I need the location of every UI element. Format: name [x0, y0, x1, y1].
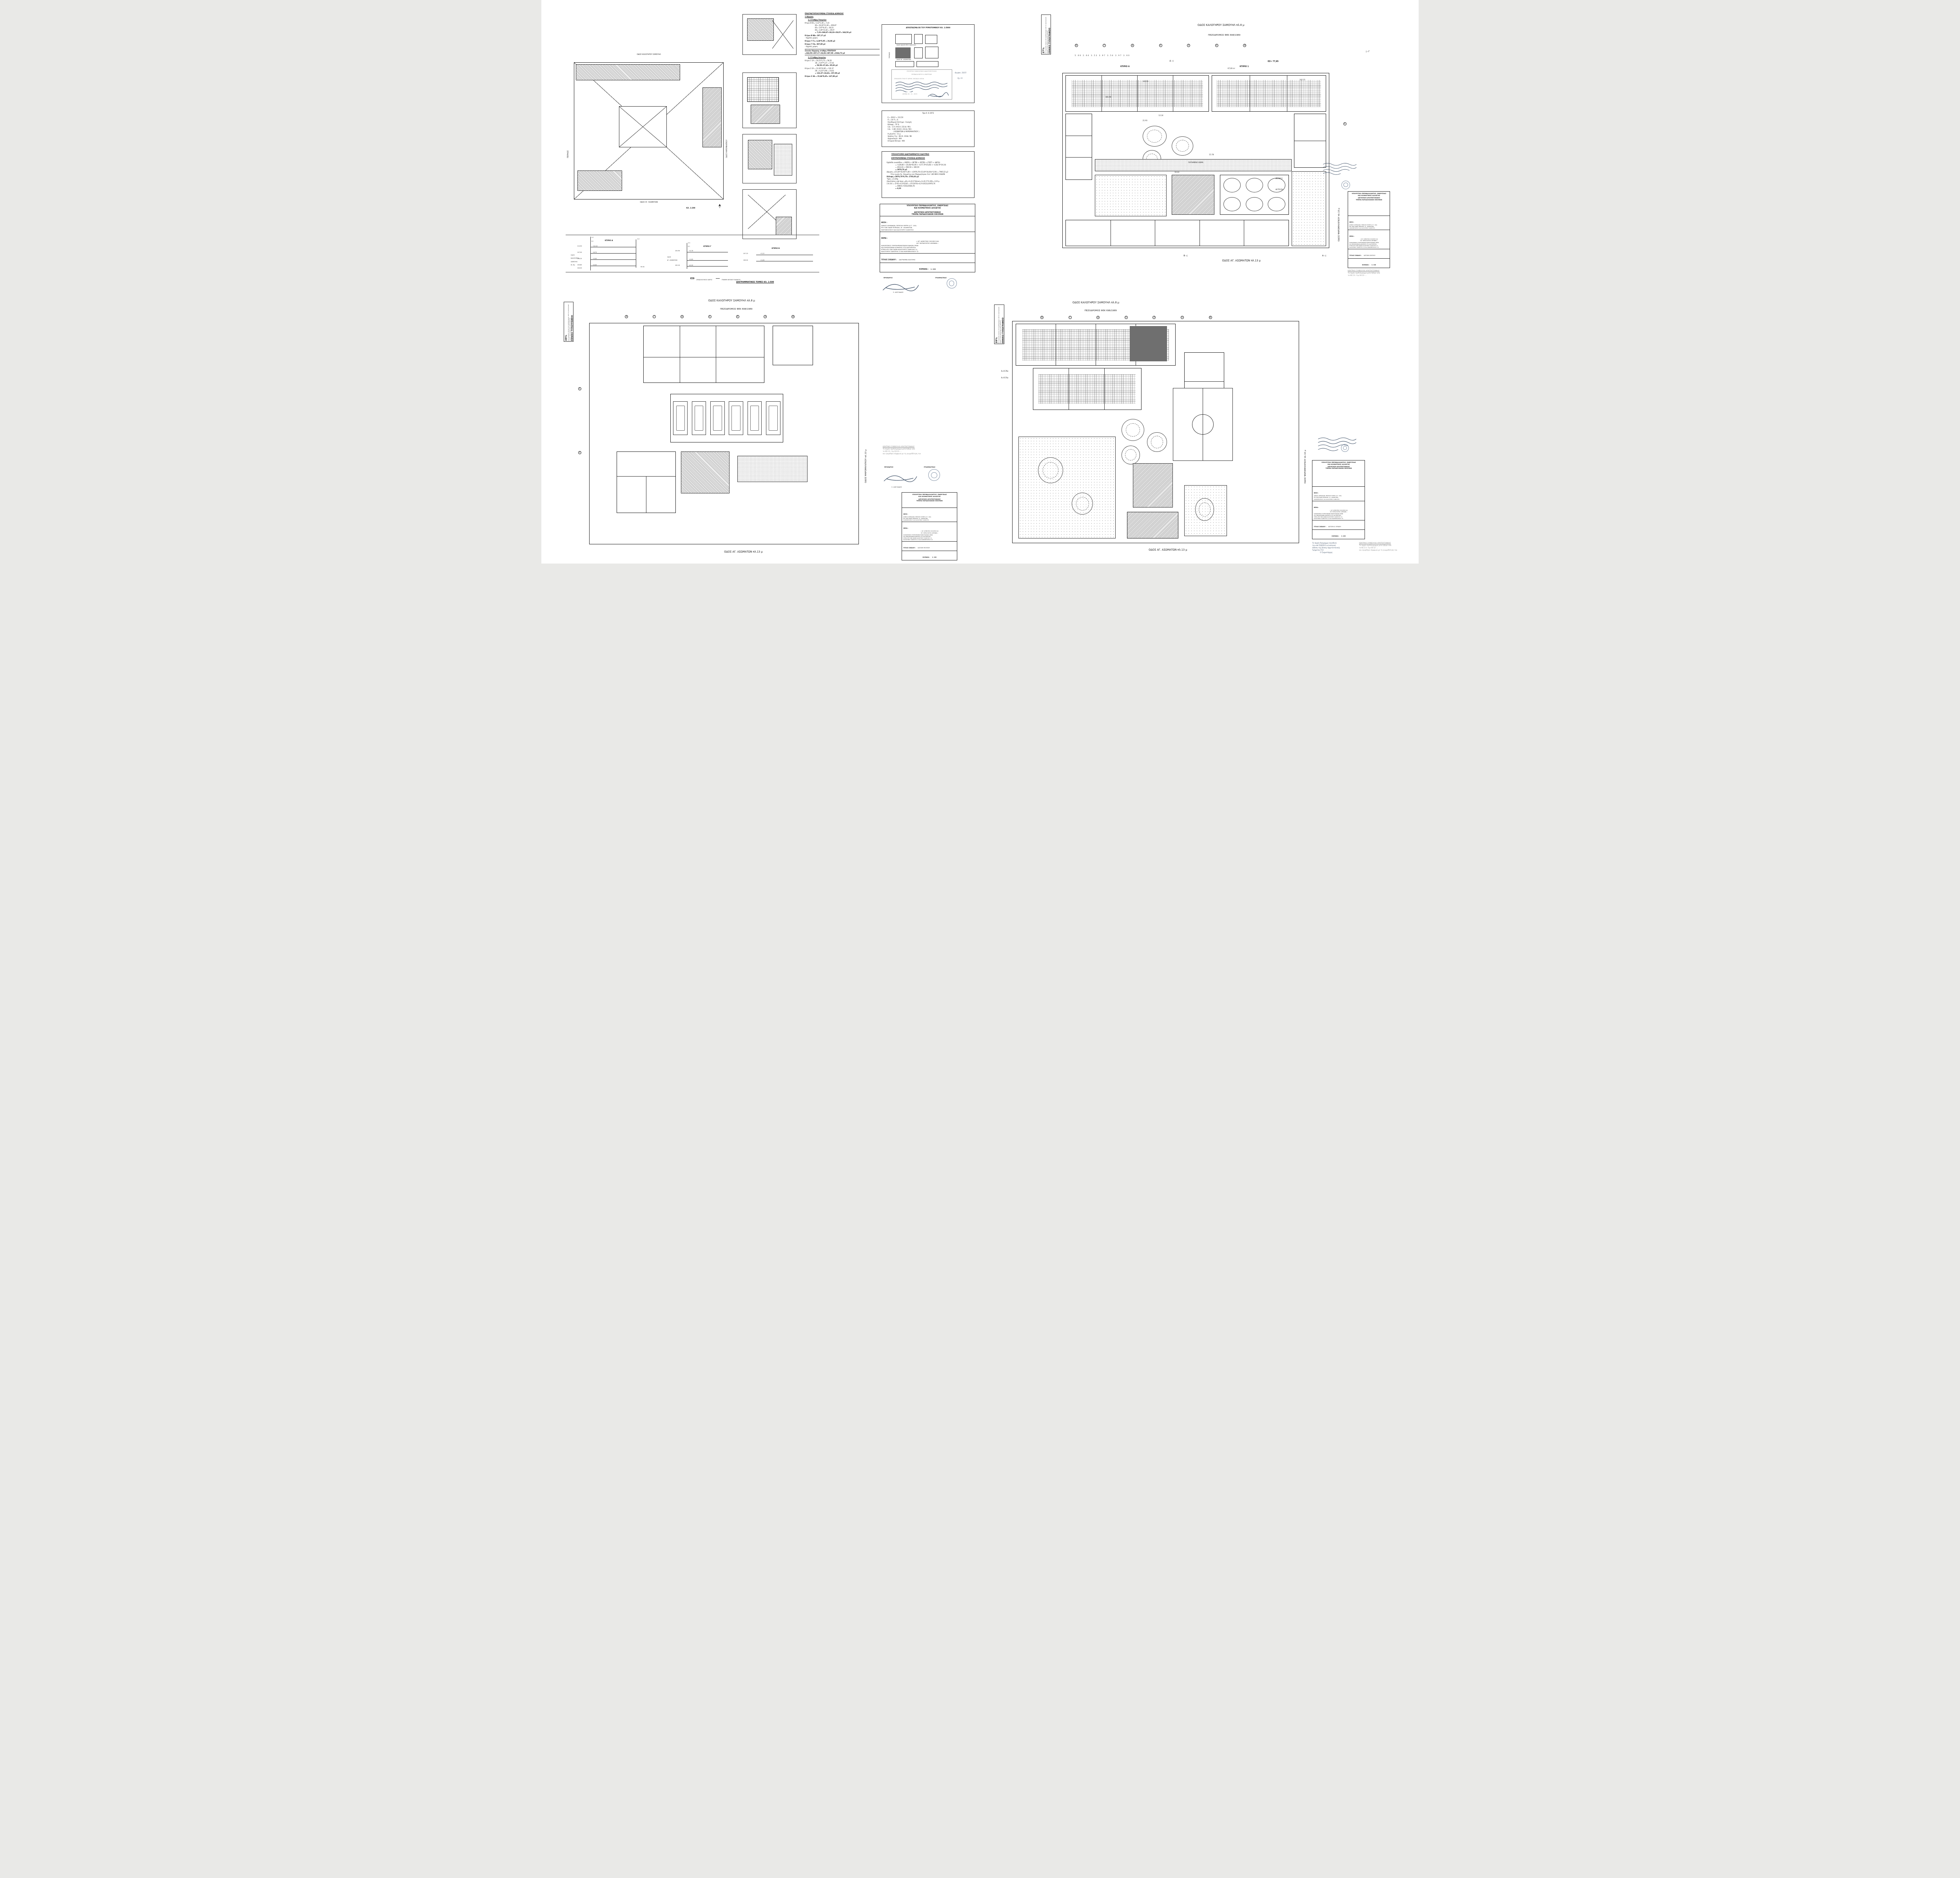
legend-archaeological: ΑΡΧΑΙΟΛΟΓΙΚΟΣ ΧΩΡΟΣ ΓΡΑΜΜΗ ΦΥΣΙΚΟΥ ΕΔΑΦΟ… [690, 274, 740, 282]
garage [670, 394, 783, 442]
classroom-band [1065, 75, 1209, 112]
subject-label: ΘΕΜΑ : [881, 237, 887, 239]
round-seal [1341, 181, 1350, 189]
street-bottom-label: ΟΔΟΣ ΑΓ. ΑΣΩΜΑΤΩΝ πλ.13 μ [724, 550, 762, 554]
grid-bubble: Θ [791, 315, 795, 318]
key-map-site-block [895, 47, 911, 58]
president-name: Σ. ΑΛΕΞΙΑΔΗΣ [893, 292, 903, 294]
calc3-sub: ΕΠΙΤΡΕΠΟΜΕΝΑ ΣΤΟΙΧΕΙΑ ΔΟΜΗΣΗΣ [891, 157, 925, 159]
level-label: 101.90 [1105, 96, 1111, 98]
calc-column: ΠΡΑΓΜΑΤΟΠΟΙΟΥΜΕΝΑ ΣΤΟΙΧΕΙΑ ΔΟΜΗΣΗΣ 1 Δόμ… [805, 13, 880, 78]
street-top-label: ΟΔΟΣ ΚΑΛΟΓΗΡΟΥ ΣΑΜΟΥΗΛ πλ.8 μ [1198, 24, 1244, 27]
grid-bubble: Β [625, 315, 628, 318]
title-block: ΥΠΟΥΡΓΕΙΟ ΠΕΡΙΒΑΛΛΟΝΤΟΣ, ΕΝΕΡΓΕΙΑΣ ΚΑΙ Κ… [1348, 191, 1390, 268]
grid-bubble: Ζ [1187, 44, 1190, 47]
section-ktirio-g: ΟΔΟΣ ΑΓ. ΑΣΩΜΑΤΩΝ Ο.Γ. Ρ.Γ. ΚΤΙΡΙΟ Γ 104… [667, 237, 733, 270]
national-printing-stamp: 39% Για τεχνικούς λόγους στο σχεδιάγραμμ… [994, 305, 1004, 344]
drawing-scale: 1: 100 [1341, 535, 1345, 537]
drawing-title: ΚΑΤΟΨΗ Α' ΟΡΟΦΟΥ [1328, 526, 1341, 528]
site-court [619, 106, 667, 147]
south-band-rooms [1065, 220, 1289, 246]
grid-bubble: Ζ [736, 315, 739, 318]
grid-bubble: Θ [1243, 44, 1246, 47]
calc-line: Κτίριο 3 3Α = 15,66*9,45= 147,98 μ2 [805, 75, 880, 78]
dark-roof [1130, 326, 1167, 361]
sheet-first-floor-plan: 39% Για τεχνικούς λόγους στο σχεδιάγραμμ… [992, 299, 1393, 563]
calc3-heading: ΥΠΟΛΟΓΙΣΜΟΙ ΔΙΑΓΡΑΜΜΑΤΟΣ ΚΑΛΥΨΗΣ [891, 153, 929, 155]
level-label: 102.15 [1299, 79, 1305, 81]
calc-line: - Αρχ/κός χώρος [805, 45, 880, 48]
street-bottom-label: ΟΔΟΣ ΑΓ. ΑΣΩΜΑΤΩΝ πλ.13 μ [1222, 259, 1261, 263]
mini-plan-4 [742, 189, 797, 239]
grid-bubble: Η [764, 315, 767, 318]
grid-bubble: Δ [1096, 316, 1100, 319]
president-name: Σ. ΑΛΕΞΙΑΔΗΣ [891, 486, 902, 488]
site-street-right-label: ΟΔΟΣ ΨΑΡΟΜΗΛΙΓΚΟΥ [726, 103, 728, 158]
approval-signatures: ΠΡΟΕΔΡΟΣ Σ. ΑΛΕΞΙΑΔΗΣ ΓΡΑΜΜΑΤΕΑΣ [880, 276, 975, 296]
site-plan: ΟΔΟΣ ΚΑΛΟΓΗΡΟΥ ΣΑΜΟΥΗΛ ΟΔΟΣ ΑΓ. ΑΣΩΜΑΤΩΝ… [574, 62, 724, 199]
dim-label: 12.24 [1159, 114, 1163, 116]
site-building-right [702, 87, 722, 147]
mini-plan-1 [742, 14, 797, 55]
mini-plan-2 [742, 73, 797, 128]
coverage-calculations-box: ΥΠΟΛΟΓΙΣΜΟΙ ΔΙΑΓΡΑΜΜΑΤΟΣ ΚΑΛΥΨΗΣ ΕΠΙΤΡΕΠ… [882, 151, 975, 198]
street-right-label: ΟΔΟΣ ΨΑΡΟΜΗΛΙΓΚΟΥ πλ.10 μ [865, 408, 867, 483]
left-rooms [1065, 114, 1092, 180]
street-top-sub: ΠΕΖΟΔΡΟΜΟΣ ΦΕΚ 698/1989 [1085, 310, 1117, 312]
approval-block: ΚΕΝΤΡΙΚΟ ΣΥΜΒΟΥΛΙΟ ΑΡΧΙΤΕΚΤΟΝΙΚΗΣ Το παρ… [883, 446, 956, 491]
grid-bubble: Γ [1103, 44, 1106, 47]
section-ktirio-a: ΟΔΟΣ ΚΑΛΟΓΗΡΟΥ ΣΑΜΟΥΗΛ πλ. 8μ Ο.Γ. Ρ.Γ. … [571, 237, 652, 270]
sheet-ref: Σχ. 11 [958, 77, 963, 79]
drawing-title: ΚΑΤΟΨΗ ΥΠΟΓΕΙΟΥ [918, 547, 930, 549]
street-top-sub: ΠΕΖΟΔΡΟΜΟΣ ΦΕΚ 698/1989 [1208, 34, 1240, 37]
avli-2-label: ΑΥΛΗ 2 [1276, 178, 1283, 180]
site-street-top-label: ΟΔΟΣ ΚΑΛΟΓΗΡΟΥ ΣΑΜΟΥΗΛ [601, 53, 697, 55]
signature [927, 92, 949, 98]
section-ktirio-b: ΚΤΙΡΙΟ Β 107.23+5,22 106.00+3,99 [743, 246, 814, 270]
site-street-left-label: ΠΕΙΡΑΙΩΣ [567, 103, 569, 158]
grid-bubble: Γ [1069, 316, 1072, 319]
distance-label-2: Δ=8,10μ [1001, 377, 1008, 379]
level-label: 102.50 [1143, 80, 1149, 82]
tree [1172, 136, 1193, 156]
sheet-ground-floor-plan: 37% Για τεχνικούς λόγους στο σχεδιάγραμμ… [1040, 11, 1390, 276]
title-block: ΥΠΟΥΡΓΕΙΟ ΠΕΡΙΒΑΛΛΟΝΤΟΣ, ΕΝΕΡΓΕΙΑΣ ΚΑΙ Κ… [902, 492, 957, 560]
sections-caption: ΔΙΑΓΡΑΜΜΑΤΙΚΕΣ ΤΟΜΕΣ ΚΛ. 1:500 [736, 281, 774, 284]
drawing-scale: 1: 100 [1372, 264, 1376, 266]
extract-office-stamp: ΥΠΟΥΡΓΕΙΟ ΠΑΡΑΓΩΓΙΚΗΣ ΑΝΑΣΥΓΚΡΟΤΗΣΗΣ ΠΕΡ… [891, 69, 952, 100]
street-right-label: ΟΔΟΣ ΨΑΡΟΜΗΛΙΓΚΟΥ πλ.10 μ [1304, 410, 1307, 484]
grid-bubble-a: Α [1343, 122, 1347, 125]
approval-note: ΚΕΝΤΡΙΚΟ ΣΥΜΒΟΥΛΙΟ ΑΡΧΙΤΕΚΤΟΝΙΚΗΣ Το παρ… [1348, 270, 1390, 277]
title-block: ΥΠΟΥΡΓΕΙΟ ΠΕΡΙΒΑΛΛΟΝΤΟΣ, ΕΝΕΡΓΕΙΑΣ ΚΑΙ Κ… [1312, 460, 1365, 539]
extract-title: ΑΠΟΣΠΑΣΜΑ ΕΚ ΤΟΥ ΡΥΜΟΤΟΜΙΚΟΥ ΚΛ. 1:5000 [884, 27, 972, 29]
calc1-heading: ΠΡΑΓΜΑΤΟΠΟΙΟΥΜΕΝΑ ΣΤΟΙΧΕΙΑ ΔΟΜΗΣΗΣ [805, 13, 880, 15]
tree [1122, 446, 1140, 464]
grid-bubble: Θ [1209, 316, 1212, 319]
grid-bubble-z: Ζ [578, 451, 581, 454]
calc1-s1: 1 Δόμηση [805, 16, 880, 18]
grid-bubble: Ε [1125, 316, 1128, 319]
grid-dims: 5.06 2.64 3.53 3.97 3.54 3.97 3.60 [1075, 54, 1130, 56]
section-marker-d: Δ ◁ [1169, 60, 1173, 63]
calc-line: Κτίριο Γ Γ1= 4,38*5,95 = 26,06 μ2 [805, 40, 880, 42]
drawing-title: ΚΑΤΟΨΗ ΙΣΟΓΕΙΟΥ [1364, 255, 1375, 256]
grid-bubble: Η [1215, 44, 1218, 47]
keymap-peiraios-label: ΠΕΙΡΑΙΩΣ [889, 40, 890, 58]
round-seal [928, 469, 940, 481]
north-arrow [717, 204, 722, 208]
grid-bubble: Η [1181, 316, 1184, 319]
second-row-rooms [1033, 368, 1142, 410]
grid-bubble: Β [1040, 316, 1044, 319]
handwritten-approval-note [1322, 157, 1357, 181]
ktirio-a-label: ΚΤΙΡΙΟ Α [1120, 66, 1130, 68]
street-top-label: ΟΔΟΣ ΚΑΛΟΓΗΡΟΥ ΣΑΜΟΥΗΛ πλ.8 μ [1073, 301, 1119, 305]
grid-bubble: Ε [1159, 44, 1162, 47]
drawing-scale: 1: 100 [932, 557, 936, 558]
president-signature [883, 469, 918, 487]
handwritten-approval-note [1317, 433, 1357, 455]
terms-title: Προ 9. 6.1973 [884, 112, 972, 114]
tree [1147, 432, 1167, 452]
site-plan-scale: ΚΛ. 1:200 [686, 207, 695, 209]
drawing-scale: 1: 200 [931, 268, 936, 270]
section-marker-a: Α ◁ [1322, 255, 1326, 257]
first-floor-plot [1012, 321, 1299, 543]
calc1-total: Σύνολο δόμησης στάθμη ΥΠΟΓΕΙΟΥ =344,50+2… [805, 49, 880, 55]
scan-canvas: ΟΔΟΣ ΚΑΛΟΓΗΡΟΥ ΣΑΜΟΥΗΛ ΟΔΟΣ ΑΓ. ΑΣΩΜΑΤΩΝ… [541, 0, 1419, 564]
planting-area-2 [1184, 485, 1227, 536]
tree [1143, 126, 1167, 147]
earth-area [737, 456, 807, 482]
basement-room-topright [773, 326, 813, 365]
street-bottom-label: ΟΔΟΣ ΑΓ. ΑΣΩΜΑΤΩΝ πλ.13 μ [1149, 548, 1187, 552]
calc-line: = 7,23+269,87+38,33+29,07= 344,50 μ2 [805, 31, 880, 34]
ktirio-1-label: ΚΤΙΡΙΟ 1 [1240, 66, 1249, 68]
calc-line: = 132,37+24,63= 157,00 μ2 [805, 72, 880, 74]
street-top-label: ΟΔΟΣ ΚΑΛΟΓΗΡΟΥ ΣΑΜΟΥΗΛ πλ.8 μ [708, 299, 755, 303]
keymap-kalogirou-label: ΟΔΟΣ ΚΑΛΟΓΗΡΟΥ ΣΑΜΟΥΗΛ [897, 44, 916, 46]
basement-plot [589, 323, 859, 544]
calc-line: - Αρχ/κός χώρος [805, 37, 880, 39]
tree [1122, 419, 1144, 441]
basement-rooms-top [643, 326, 764, 383]
location-label: ΘΕΣΗ : [881, 221, 887, 223]
grid-bubble: Ε [708, 315, 711, 318]
pergola-hatched [1133, 463, 1173, 508]
area-label: 67,00 m² [1228, 67, 1235, 69]
ground-floor-plot: 67,00 m² 102.50 101.90 102.15 101.01 100… [1062, 73, 1329, 248]
national-printing-stamp: 39% Για τεχνικούς λόγους στο σχεδιάγραμμ… [564, 302, 573, 342]
patimeno-label: ΠΑΤΗΜΕΝΟ ΧΩΜΑ [1143, 161, 1249, 163]
dim-label: 15.78 [1209, 154, 1214, 156]
basketball-court [1173, 388, 1233, 461]
terms-line: Ιστορικό Κέντρο : ΝΑΙ [887, 140, 972, 142]
courtyard-2 [1292, 171, 1326, 246]
lower-roof [1127, 512, 1178, 538]
section-marker-b: Β ◁ [1183, 255, 1187, 257]
national-printing-stamp: 37% Για τεχνικούς λόγους στο σχεδιάγραμμ… [1041, 15, 1051, 54]
pergola-hatched [1172, 175, 1214, 215]
key-map: ΠΕΙΡΑΙΩΣ ΟΔΟΣ ΚΑΛΟΓΗΡΟΥ ΣΑΜΟΥΗΛ ΟΔΟΣ ΑΓ.… [887, 34, 943, 67]
round-seal [947, 278, 957, 288]
grid-bubble: Γ [653, 315, 656, 318]
sections-strip: ΟΔΟΣ ΚΑΛΟΓΗΡΟΥ ΣΑΜΟΥΗΛ πλ. 8μ Ο.Γ. Ρ.Γ. … [566, 235, 819, 273]
keymap-asomaton-label: ΟΔΟΣ ΑΓ. ΑΣΩΜΑΤΩΝ [897, 59, 911, 60]
grid-bubble: Δ [681, 315, 684, 318]
earth-band [1095, 159, 1292, 171]
site-building-bottom [577, 170, 622, 191]
classroom-block-right [1212, 75, 1326, 112]
zoning-extract-box: ΑΠΟΣΠΑΣΜΑ ΕΚ ΤΟΥ ΡΥΜΟΤΟΜΙΚΟΥ ΚΛ. 1:5000 … [882, 24, 975, 103]
approval-note: ΚΕΝΤΡΙΚΟ ΣΥΜΒΟΥΛΙΟ ΑΡΧΙΤΕΚΤΟΝΙΚΗΣ Το παρ… [1359, 542, 1392, 551]
section-marker-g: ▷ Γ [1366, 51, 1370, 53]
hatch-swatch [690, 277, 694, 279]
right-rooms [1294, 114, 1326, 168]
fytefsi-label: ΦΥΤΕΥΣΗ [1276, 189, 1283, 190]
dim-label: 19.24 [1174, 171, 1179, 173]
grid-bubble: Β [1075, 44, 1078, 47]
distance-label-1: Δ=8,30μ [1001, 370, 1008, 372]
calc-line: = 58,50+37,42= 95,92 μ2 [805, 64, 880, 67]
ez-label: ΕΖ= 77,85 [1268, 61, 1279, 63]
dining-room [1220, 175, 1289, 215]
basement-rooms-lower [617, 451, 676, 513]
building-terms-box: Προ 9. 6.1973 Ε = 200 Ε = 112,50 Π = 10 … [882, 111, 975, 147]
grid-bubble: Ζ [1152, 316, 1156, 319]
grid-bubble: Δ [1131, 44, 1134, 47]
planting-court [1095, 175, 1167, 217]
calc1-s11: 1.1 Στάθμη Υπογείου [808, 19, 880, 21]
calc1-s12: 1.2 Στάθμη Ισογείου [808, 56, 880, 59]
accompany-note: Το παρόν διάγραμμα συνοδεύει την από 5|9… [1312, 542, 1356, 554]
grid-bubble-e: Ε [578, 387, 581, 390]
planting-area [1018, 437, 1116, 538]
mini-plan-3 [742, 134, 797, 184]
site-street-bottom-label: ΟΔΟΣ ΑΓ. ΑΣΩΜΑΤΩΝ [601, 201, 697, 203]
sheet-coverage-diagram: ΟΔΟΣ ΚΑΛΟΓΗΡΟΥ ΣΑΜΟΥΗΛ ΟΔΟΣ ΑΓ. ΑΣΩΜΑΤΩΝ… [561, 4, 977, 296]
line-swatch [716, 278, 720, 279]
title-block: ΥΠΟΥΡΓΕΙΟ ΠΕΡΙΒΑΛΛΟΝΤΟΣ, ΕΝΕΡΓΕΙΑΣ ΚΑΙ Κ… [880, 204, 975, 272]
handwritten-note [895, 81, 949, 92]
calc3-line: = 4,33 [887, 187, 972, 190]
street-top-sub: ΠΕΖΟΔΡΟΜΟΣ ΦΕΚ 698/1989 [720, 308, 752, 311]
file-ref: Αρ.φακ. 33/15 [955, 72, 967, 74]
ramp-hatched [681, 451, 729, 493]
drawing-title: ΔΙΑΓΡΑΜΜΑ ΚΑΛΥΨΗΣ [899, 259, 915, 261]
dim-label: 21.93 [1143, 120, 1147, 121]
site-building-top [576, 64, 680, 81]
sheet-basement-plan: 39% Για τεχνικούς λόγους στο σχεδιάγραμμ… [561, 296, 958, 563]
